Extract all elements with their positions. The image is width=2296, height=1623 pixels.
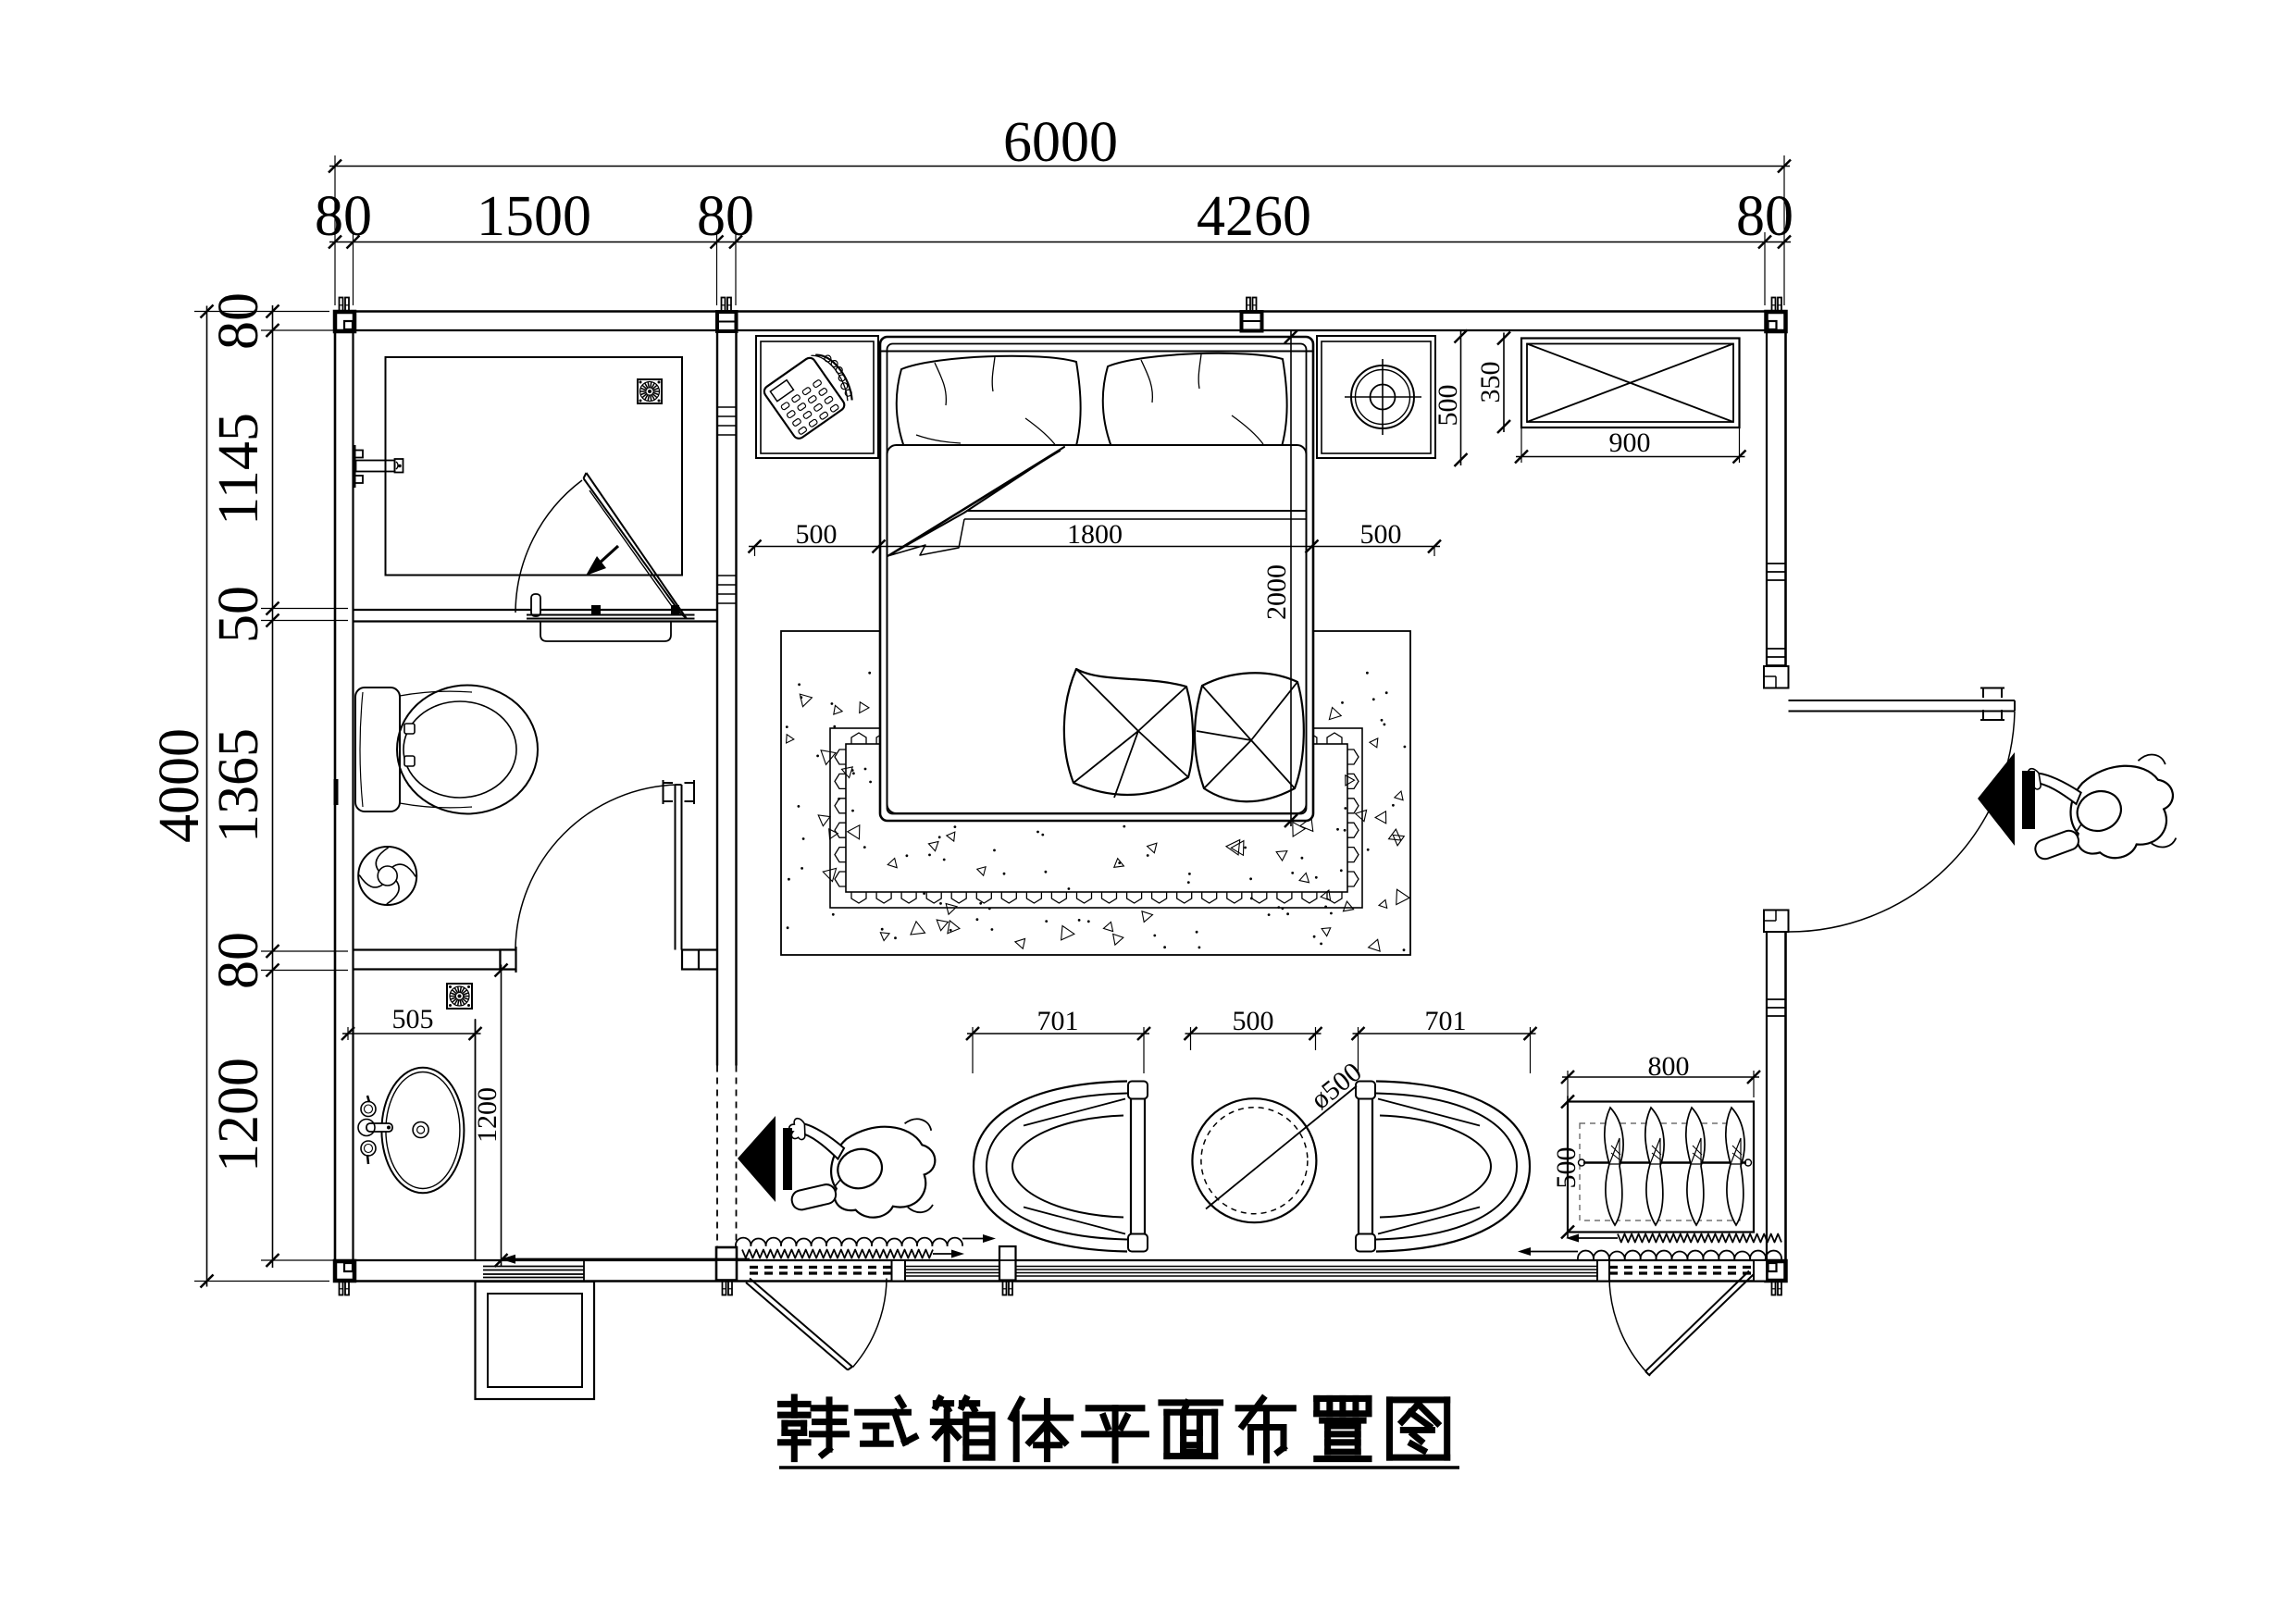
svg-text:1365: 1365 xyxy=(207,728,270,843)
svg-text:50: 50 xyxy=(207,586,270,643)
svg-text:1500: 1500 xyxy=(477,185,591,248)
svg-text:500: 500 xyxy=(1433,385,1463,427)
svg-text:1800: 1800 xyxy=(1067,519,1123,550)
svg-text:80: 80 xyxy=(1736,185,1793,248)
svg-text:500: 500 xyxy=(1233,1006,1274,1036)
svg-text:2000: 2000 xyxy=(1261,564,1292,620)
svg-text:80: 80 xyxy=(697,185,754,248)
svg-text:500: 500 xyxy=(796,519,838,550)
svg-text:505: 505 xyxy=(392,1004,434,1035)
svg-text:500: 500 xyxy=(1551,1147,1582,1189)
svg-text:800: 800 xyxy=(1648,1051,1690,1082)
svg-text:4000: 4000 xyxy=(148,728,211,843)
svg-text:6000: 6000 xyxy=(1003,111,1118,174)
svg-text:80: 80 xyxy=(207,932,270,989)
svg-text:1145: 1145 xyxy=(207,413,270,526)
svg-text:80: 80 xyxy=(315,185,372,248)
svg-text:4260: 4260 xyxy=(1197,185,1311,248)
svg-text:500: 500 xyxy=(1360,519,1402,550)
svg-text:701: 701 xyxy=(1037,1006,1079,1036)
svg-text:350: 350 xyxy=(1475,362,1506,403)
svg-text:701: 701 xyxy=(1425,1006,1467,1036)
svg-text:900: 900 xyxy=(1609,427,1651,458)
svg-text:1200: 1200 xyxy=(207,1058,270,1172)
svg-text:80: 80 xyxy=(207,292,270,350)
svg-text:1200: 1200 xyxy=(472,1087,503,1143)
